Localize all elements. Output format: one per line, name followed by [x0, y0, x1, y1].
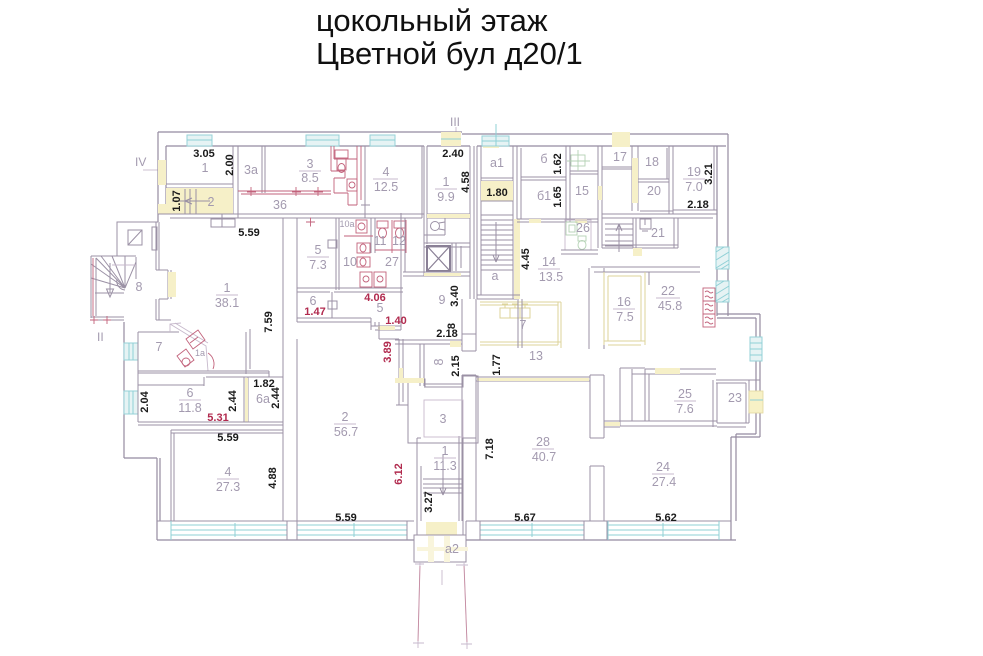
svg-text:4.58: 4.58 — [460, 171, 472, 192]
svg-text:27.3: 27.3 — [216, 480, 240, 494]
svg-text:22: 22 — [661, 284, 675, 298]
svg-text:26: 26 — [576, 221, 590, 235]
svg-text:2: 2 — [342, 410, 349, 424]
svg-text:7.3: 7.3 — [309, 258, 326, 272]
svg-text:2.04: 2.04 — [139, 390, 151, 412]
svg-text:56.7: 56.7 — [334, 425, 358, 439]
svg-text:40.7: 40.7 — [532, 450, 556, 464]
svg-text:17: 17 — [613, 150, 627, 164]
svg-text:2.18: 2.18 — [687, 199, 708, 211]
svg-text:28: 28 — [536, 435, 550, 449]
svg-text:9: 9 — [439, 293, 446, 307]
svg-text:4.45: 4.45 — [520, 248, 532, 269]
svg-text:5.67: 5.67 — [514, 512, 535, 524]
svg-text:2.44: 2.44 — [227, 389, 239, 411]
svg-text:13.5: 13.5 — [539, 270, 563, 284]
svg-text:1.07: 1.07 — [171, 190, 183, 211]
svg-text:25: 25 — [678, 387, 692, 401]
svg-text:цокольный этаж: цокольный этаж — [316, 3, 548, 38]
svg-text:1: 1 — [224, 281, 231, 295]
svg-text:38.1: 38.1 — [215, 296, 239, 310]
svg-text:5.59: 5.59 — [335, 512, 356, 524]
svg-text:7.6: 7.6 — [676, 402, 693, 416]
svg-text:1.77: 1.77 — [491, 354, 503, 375]
svg-text:16: 16 — [617, 295, 631, 309]
svg-text:21: 21 — [651, 226, 665, 240]
svg-text:7.59: 7.59 — [263, 311, 275, 332]
svg-text:4.88: 4.88 — [267, 467, 279, 488]
svg-text:1: 1 — [443, 175, 450, 189]
svg-text:2.15: 2.15 — [450, 355, 462, 376]
svg-text:4: 4 — [225, 465, 232, 479]
svg-text:8: 8 — [432, 358, 446, 365]
svg-text:3.21: 3.21 — [703, 163, 715, 184]
svg-text:1: 1 — [442, 444, 449, 458]
svg-text:5: 5 — [315, 243, 322, 257]
svg-text:5.59: 5.59 — [238, 227, 259, 239]
svg-text:III: III — [450, 115, 460, 129]
svg-text:8: 8 — [446, 323, 458, 329]
svg-text:8.5: 8.5 — [301, 171, 318, 185]
svg-text:27.4: 27.4 — [652, 475, 676, 489]
svg-text:11: 11 — [374, 234, 387, 248]
svg-text:2.00: 2.00 — [224, 154, 236, 175]
svg-text:6: 6 — [310, 294, 317, 308]
svg-text:1.62: 1.62 — [552, 153, 564, 174]
svg-text:27: 27 — [385, 255, 399, 269]
svg-text:13: 13 — [529, 349, 543, 363]
svg-text:18: 18 — [645, 155, 659, 169]
svg-text:б1: б1 — [537, 189, 551, 203]
svg-text:3: 3 — [307, 157, 314, 171]
svg-text:45.8: 45.8 — [658, 299, 682, 313]
svg-text:6: 6 — [187, 386, 194, 400]
svg-text:а2: а2 — [445, 542, 459, 556]
svg-text:а1: а1 — [490, 156, 504, 170]
svg-text:1: 1 — [202, 161, 209, 175]
svg-text:10: 10 — [343, 255, 357, 269]
svg-text:3а: 3а — [244, 163, 258, 177]
svg-text:3.40: 3.40 — [449, 285, 461, 306]
svg-text:12: 12 — [392, 234, 406, 248]
svg-text:II: II — [97, 330, 104, 344]
svg-text:1.80: 1.80 — [486, 187, 507, 199]
svg-text:7.18: 7.18 — [484, 438, 496, 459]
svg-text:10а: 10а — [339, 219, 354, 229]
svg-text:2.44: 2.44 — [270, 386, 282, 408]
svg-text:7: 7 — [156, 340, 163, 354]
svg-text:7.0: 7.0 — [685, 180, 702, 194]
svg-text:19: 19 — [687, 165, 701, 179]
svg-text:7: 7 — [520, 318, 527, 332]
svg-text:1.40: 1.40 — [385, 315, 406, 327]
svg-text:6а: 6а — [256, 392, 270, 406]
svg-text:14: 14 — [542, 255, 556, 269]
svg-text:6.12: 6.12 — [393, 463, 405, 484]
svg-text:2.40: 2.40 — [442, 148, 463, 160]
svg-text:11.3: 11.3 — [433, 459, 456, 473]
svg-text:5.31: 5.31 — [207, 412, 228, 424]
svg-text:9.9: 9.9 — [437, 190, 454, 204]
svg-text:5: 5 — [377, 301, 384, 315]
svg-text:23: 23 — [728, 391, 742, 405]
svg-text:20: 20 — [647, 184, 661, 198]
svg-text:1а: 1а — [195, 348, 205, 358]
svg-text:24: 24 — [656, 460, 670, 474]
svg-text:3: 3 — [440, 412, 447, 426]
svg-text:IV: IV — [135, 155, 146, 169]
svg-text:Цветной бул д20/1: Цветной бул д20/1 — [316, 36, 583, 71]
svg-text:3.05: 3.05 — [193, 148, 214, 160]
svg-text:5.62: 5.62 — [655, 512, 676, 524]
svg-text:1.65: 1.65 — [552, 186, 564, 207]
svg-text:11.8: 11.8 — [178, 401, 201, 415]
svg-text:2: 2 — [208, 195, 215, 209]
svg-text:7.5: 7.5 — [616, 310, 633, 324]
svg-text:15: 15 — [575, 184, 589, 198]
svg-text:а: а — [492, 269, 499, 283]
svg-text:3.27: 3.27 — [423, 491, 435, 512]
svg-text:4: 4 — [383, 165, 390, 179]
svg-text:36: 36 — [273, 198, 287, 212]
svg-text:3.89: 3.89 — [382, 341, 394, 362]
svg-text:12.5: 12.5 — [374, 180, 398, 194]
svg-text:5.59: 5.59 — [217, 432, 238, 444]
svg-text:8: 8 — [136, 280, 143, 294]
svg-text:б: б — [540, 152, 547, 166]
